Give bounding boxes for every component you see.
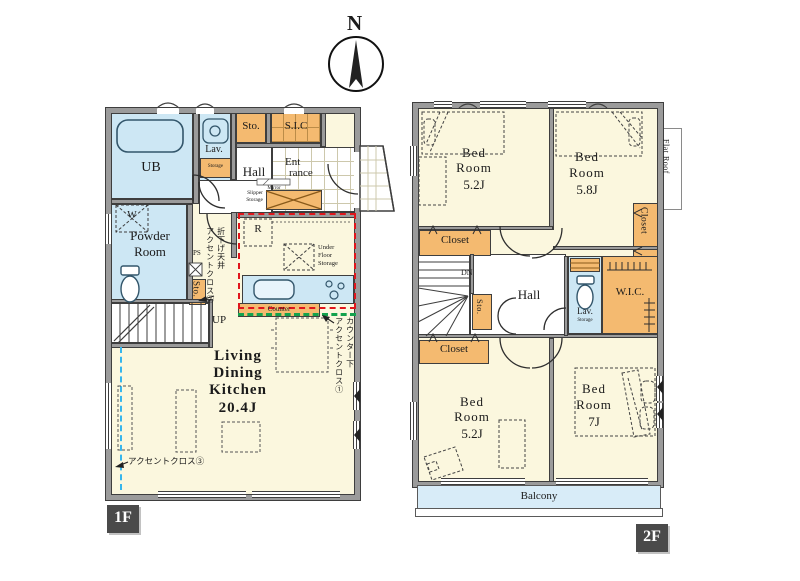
window [158,491,246,498]
ps-label: PS [193,250,201,258]
room-label-lav-storage-1f: Storage [200,164,231,169]
room-label-powder-1: Powder [115,229,185,243]
room-label-sic: S.I.C [271,121,321,133]
window [556,478,648,485]
slipper-storage-box [266,190,322,210]
up-label: UP [212,315,226,327]
accent2-note-col2: アクセントクロス② [205,227,214,327]
window [105,383,112,449]
wall [564,256,568,336]
bedroom4-size: 7J [556,415,632,429]
under-floor-label-3: Storage [318,260,338,267]
room-label-storage-top-1f: Sto. [236,121,266,133]
bedroom2-label-2: Room [549,166,625,180]
window [252,491,340,498]
wall [549,338,554,482]
wall [418,334,658,338]
window [157,108,179,114]
balcony-handrail [415,508,663,517]
window [196,108,214,114]
bedroom2-label-1: Bed [549,150,625,164]
bedroom2-size: 5.8J [549,183,625,197]
wall-accent-line [120,347,122,490]
stairs-2f-area [418,254,470,336]
bedroom4-label-1: Bed [556,382,632,396]
room-label-entrance-2: rance [289,168,313,180]
ldk-label-1: Living [180,348,296,364]
room-label-lav-2f: Lav. [568,307,602,317]
compass-icon [329,37,383,91]
closet-left-bottom-label: Closet [419,344,489,356]
slipper-storage-label-2: Storage [233,198,263,204]
window [353,382,360,410]
bedroom3-label-2: Room [434,410,510,424]
bedroom1-size: 5.2J [436,178,512,192]
under-floor-label-2: Floor [318,252,332,259]
dn-label: DN [461,269,473,278]
room-label-lav-storage-2f: Storage [568,318,602,323]
window [410,402,417,440]
accent2-note-col1: 折下げ天井 [216,227,225,307]
window [441,478,525,485]
flat-roof-label: Flat Roof [661,139,670,203]
bedroom3-label-1: Bed [434,395,510,409]
room-label-storage-side-1f: Sto. [191,281,201,305]
ldk-size-label: 20.4J [180,400,296,416]
room-label-wic: W.I.C. [602,287,658,299]
porch [360,146,394,211]
window [434,101,452,108]
bedroom1-label-2: Room [436,161,512,175]
room-label-powder-2: Room [115,245,185,259]
window [656,403,663,428]
room-label-hall-2f: Hall [505,288,553,302]
balcony-label: Balcony [509,491,569,503]
floor-badge-1f: 1F [107,505,139,533]
under-floor-label-1: Under [318,244,334,251]
closet-left-top-label: Closet [419,235,491,247]
wall [321,113,326,147]
window [656,376,663,401]
lav-shelf-2f [570,258,600,272]
window [353,421,360,449]
wall [111,199,193,204]
bedroom3-size: 5.2J [434,427,510,441]
wall [236,143,321,148]
accent1-note-col1: カウンター下 [345,317,354,397]
door-opening [354,152,362,208]
floorplan-canvas: N [0,0,800,581]
ldk-label-3: Kitchen [180,382,296,398]
accent1-note-col2: アクセントクロス① [334,317,343,417]
window [480,101,526,108]
wall [231,212,237,258]
wall [418,226,553,230]
wall [193,113,199,204]
room-label-lav-1f: Lav. [196,145,232,156]
counter-label: Counter [238,306,320,314]
bedroom4-label-2: Room [556,398,632,412]
washer-label: W [121,211,143,222]
closet-right-label: Closet [638,207,648,255]
stairs-1f-area [111,303,209,343]
room-label-ub: UB [131,160,171,175]
room-label-hall-1f: Hall [230,165,278,179]
window [410,146,417,176]
ldk-label-2: Dining [180,365,296,381]
window [105,214,112,244]
bedroom1-label-1: Bed [436,146,512,160]
compass-n-label: N [347,12,362,35]
room-ub [111,113,193,199]
window [284,108,304,114]
fridge-label: R [248,224,268,236]
floor-badge-2f: 2F [636,524,668,552]
accent3-note: アクセントクロス③ [128,457,204,466]
room-label-storage-2f: Sto. [475,299,484,327]
window [548,101,586,108]
